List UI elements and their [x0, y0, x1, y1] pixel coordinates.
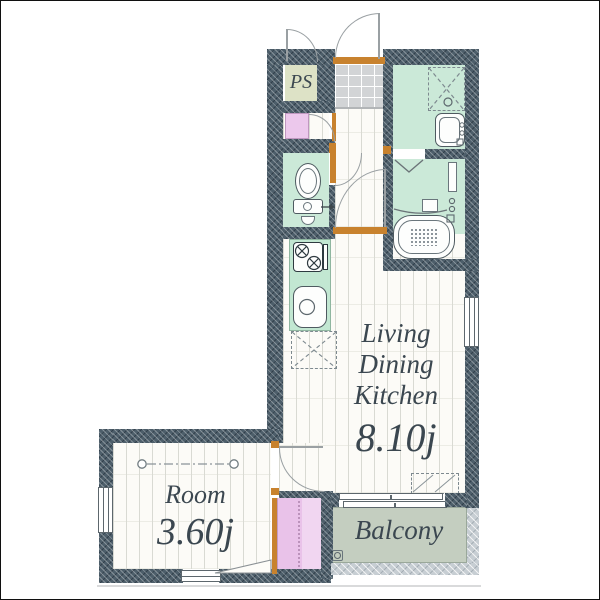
sliding-window-panel-1 — [339, 493, 443, 500]
pipe-space-label: PS — [285, 71, 317, 94]
room-left-window — [98, 487, 113, 533]
wall — [331, 493, 339, 507]
wall — [283, 101, 335, 113]
washbasin-bowl — [439, 117, 460, 143]
stove-knob-panel — [323, 244, 328, 270]
closet-door-leaf — [272, 498, 277, 574]
ldk-door-leaf — [384, 169, 386, 227]
ground-line — [97, 585, 481, 587]
bath-cabinet — [448, 162, 457, 192]
wall — [99, 429, 113, 489]
entrance-step-line — [335, 107, 383, 109]
wall — [267, 65, 283, 443]
room-label: Room 3.60j — [123, 480, 268, 555]
air-conditioner-space — [411, 473, 459, 494]
wall — [445, 493, 467, 507]
wall — [99, 429, 279, 443]
floorplan-canvas: PS Living Dining Kitchen 8.10j Room 3.60… — [0, 0, 600, 600]
wall — [283, 139, 335, 153]
balcony-parapet-bottom — [331, 563, 479, 575]
bathtub-drain-grate — [410, 228, 438, 246]
toilet-seat-inner — [299, 168, 317, 194]
balcony-parapet-right — [467, 508, 479, 563]
wall — [283, 227, 335, 239]
toilet-door-post — [329, 143, 336, 153]
ldk-label-line3: Kitchen — [321, 380, 471, 411]
hall-door-post — [383, 146, 391, 154]
ldk-door-threshold — [333, 227, 387, 234]
ldk-label-line1: Living — [321, 318, 471, 349]
room-door-post-top — [271, 441, 279, 448]
toilet-tank-lid-circle — [303, 202, 312, 211]
pipe-space-door-leaf — [286, 29, 288, 61]
pipe-space-door-arc — [287, 29, 318, 62]
room-door-leaf — [279, 446, 323, 448]
balcony-drain — [332, 550, 343, 561]
entrance-door-arc — [335, 13, 380, 58]
room-door-post-bottom — [271, 488, 279, 495]
balcony-label: Balcony — [334, 515, 464, 546]
wall — [383, 259, 479, 271]
sliding-window-panel-2 — [343, 501, 447, 508]
ldk-label: Living Dining Kitchen 8.10j — [321, 318, 471, 461]
room-bottom-window — [181, 570, 221, 582]
shoe-storage — [285, 113, 309, 139]
kitchen-stove — [293, 242, 323, 272]
room-size-label: 3.60j — [123, 511, 268, 555]
room-label-text: Room — [123, 480, 268, 510]
wall — [329, 185, 335, 227]
closet-hanger-line — [298, 501, 300, 571]
wall — [425, 149, 465, 159]
wall — [99, 569, 183, 583]
washing-machine-space — [428, 67, 465, 111]
wall — [383, 49, 479, 65]
entrance-door-leaf — [378, 13, 380, 59]
ldk-size-label: 8.10j — [321, 415, 471, 461]
ldk-label-line2: Dining — [321, 349, 471, 380]
entrance-tile-floor — [335, 65, 383, 109]
bath-counter-box — [422, 199, 438, 212]
